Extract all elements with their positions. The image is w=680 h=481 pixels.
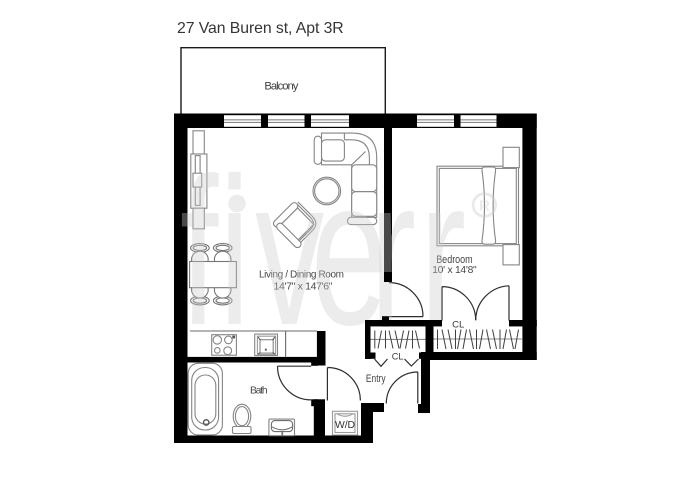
- svg-text:R: R: [479, 197, 490, 214]
- svg-text:fiverr: fiverr: [180, 134, 466, 369]
- svg-text:Entry: Entry: [366, 373, 386, 385]
- svg-text:Bath: Bath: [250, 386, 268, 397]
- svg-text:W/D: W/D: [335, 420, 355, 431]
- svg-text:Balcony: Balcony: [264, 80, 298, 92]
- svg-text:27 Van Buren st, Apt 3R: 27 Van Buren st, Apt 3R: [177, 20, 344, 37]
